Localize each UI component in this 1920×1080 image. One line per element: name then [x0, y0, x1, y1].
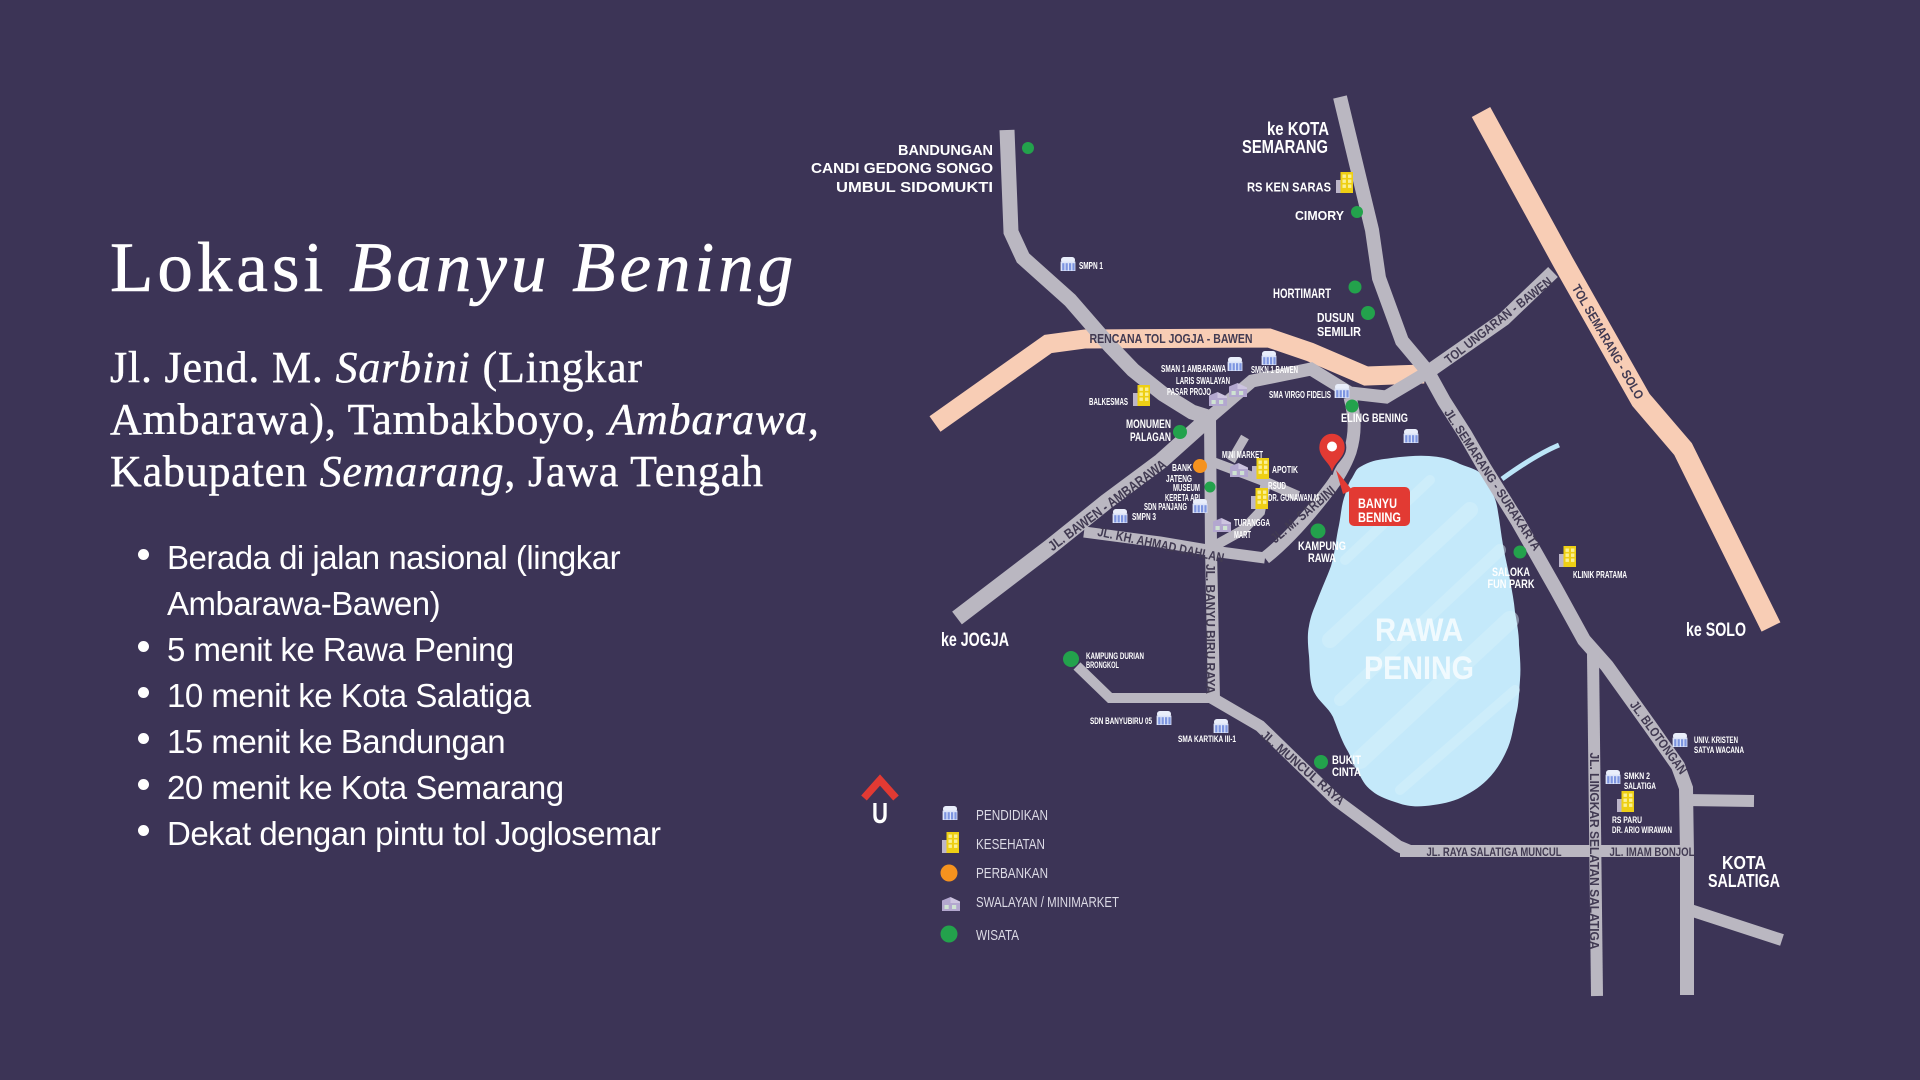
- svg-text:ke SOLO: ke SOLO: [1686, 620, 1746, 641]
- svg-text:BANYU: BANYU: [1358, 496, 1397, 511]
- svg-text:PALAGAN: PALAGAN: [1130, 430, 1171, 444]
- svg-text:U: U: [872, 798, 888, 830]
- svg-text:JL. BANYU BIRU RAYA: JL. BANYU BIRU RAYA: [1203, 564, 1217, 694]
- svg-text:JL. RAYA SALATIGA MUNCUL: JL. RAYA SALATIGA MUNCUL: [1427, 845, 1562, 859]
- svg-text:FUN PARK: FUN PARK: [1488, 579, 1536, 591]
- svg-text:BANK: BANK: [1172, 463, 1193, 474]
- svg-text:MART: MART: [1234, 530, 1251, 541]
- svg-text:KLINIK PRATAMA: KLINIK PRATAMA: [1573, 570, 1627, 581]
- svg-text:DR. ARIO WIRAWAN: DR. ARIO WIRAWAN: [1612, 825, 1672, 836]
- svg-text:PENDIDIKAN: PENDIDIKAN: [976, 807, 1048, 824]
- svg-text:TOL SEMARANG - SOLO: TOL SEMARANG - SOLO: [1569, 282, 1647, 402]
- svg-text:RSUD: RSUD: [1268, 481, 1286, 492]
- svg-text:PENING: PENING: [1364, 650, 1474, 686]
- svg-text:APOTIK: APOTIK: [1272, 465, 1299, 476]
- svg-text:ELING BENING: ELING BENING: [1341, 413, 1408, 425]
- svg-text:CIMORY: CIMORY: [1295, 208, 1344, 223]
- svg-text:TOL UNGARAN - BAWEN: TOL UNGARAN - BAWEN: [1442, 274, 1555, 367]
- svg-text:KESEHATAN: KESEHATAN: [976, 836, 1045, 853]
- svg-text:DUSUN: DUSUN: [1317, 311, 1354, 325]
- svg-text:KAMPUNG: KAMPUNG: [1298, 541, 1346, 553]
- svg-text:PERBANKAN: PERBANKAN: [976, 865, 1048, 882]
- svg-text:SATYA WACANA: SATYA WACANA: [1694, 745, 1744, 756]
- svg-text:CANDI GEDONG SONGO: CANDI GEDONG SONGO: [811, 160, 993, 177]
- svg-text:PASAR PROJO: PASAR PROJO: [1167, 387, 1211, 398]
- svg-text:ke JOGJA: ke JOGJA: [941, 630, 1009, 651]
- svg-text:JL. LINGKAR SELATAN SALATIGA: JL. LINGKAR SELATAN SALATIGA: [1587, 753, 1602, 951]
- svg-text:MONUMEN: MONUMEN: [1126, 417, 1171, 431]
- svg-text:BENING: BENING: [1358, 510, 1401, 525]
- svg-text:JL. IMAM BONJOL: JL. IMAM BONJOL: [1610, 845, 1695, 859]
- svg-text:DR. GUNAWAN M: DR. GUNAWAN M: [1268, 493, 1319, 504]
- svg-text:TURANGGA: TURANGGA: [1234, 518, 1270, 529]
- svg-text:SALATIGA: SALATIGA: [1624, 781, 1656, 792]
- svg-text:LARIS SWALAYAN: LARIS SWALAYAN: [1176, 376, 1230, 387]
- svg-text:SEMILIR: SEMILIR: [1317, 325, 1361, 339]
- svg-text:BUKIT: BUKIT: [1332, 755, 1361, 767]
- svg-text:SWALAYAN / MINIMARKET: SWALAYAN / MINIMARKET: [976, 894, 1119, 911]
- svg-text:RENCANA TOL JOGJA - BAWEN: RENCANA TOL JOGJA - BAWEN: [1090, 332, 1253, 346]
- svg-text:BALKESMAS: BALKESMAS: [1089, 397, 1128, 408]
- svg-text:SALATIGA: SALATIGA: [1708, 871, 1780, 891]
- svg-text:RAWA: RAWA: [1375, 612, 1463, 648]
- svg-text:RAWA: RAWA: [1308, 553, 1336, 565]
- svg-text:KOTA: KOTA: [1722, 853, 1766, 873]
- svg-text:BRONGKOL: BRONGKOL: [1086, 660, 1119, 671]
- svg-text:UMBUL SIDOMUKTI: UMBUL SIDOMUKTI: [836, 179, 993, 196]
- svg-text:SMPN 1: SMPN 1: [1079, 261, 1103, 272]
- svg-text:SMKN 1 BAWEN: SMKN 1 BAWEN: [1251, 365, 1298, 376]
- svg-text:CINTA: CINTA: [1332, 767, 1361, 779]
- svg-text:SDN BANYUBIRU 05: SDN BANYUBIRU 05: [1090, 716, 1152, 727]
- svg-text:SEMARANG: SEMARANG: [1242, 137, 1328, 157]
- svg-text:ke KOTA: ke KOTA: [1267, 119, 1329, 139]
- svg-text:RS KEN SARAS: RS KEN SARAS: [1247, 180, 1331, 195]
- svg-text:SMPN 3: SMPN 3: [1132, 512, 1156, 523]
- svg-text:WISATA: WISATA: [976, 927, 1019, 944]
- svg-text:SALOKA: SALOKA: [1492, 567, 1530, 579]
- svg-text:SMAN 1 AMBARAWA: SMAN 1 AMBARAWA: [1161, 364, 1226, 375]
- svg-text:SMA VIRGO FIDELIS: SMA VIRGO FIDELIS: [1269, 390, 1331, 401]
- svg-text:BANDUNGAN: BANDUNGAN: [898, 142, 993, 159]
- svg-text:HORTIMART: HORTIMART: [1273, 286, 1332, 301]
- svg-text:SMA KARTIKA III-1: SMA KARTIKA III-1: [1178, 734, 1236, 745]
